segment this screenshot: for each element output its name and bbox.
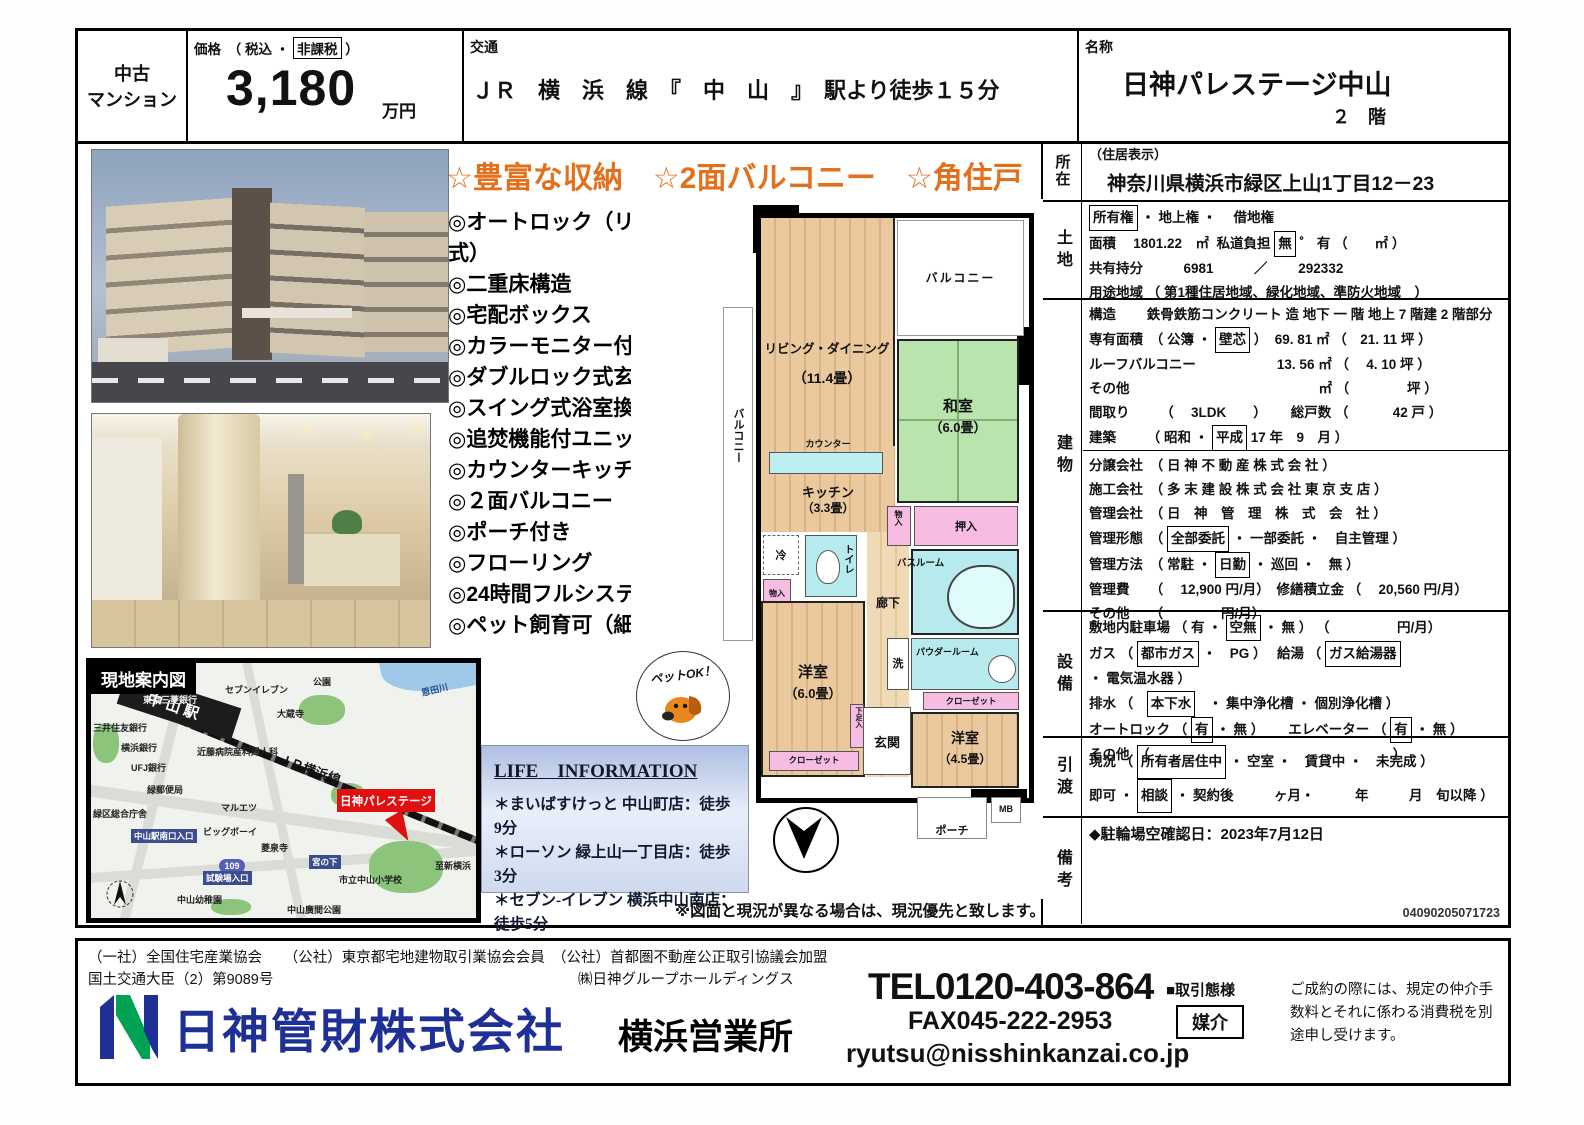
selected-option: 壁芯 (1215, 327, 1250, 353)
text-segment: 間取り （ 3LDK ） 総戸数 （ 42 戸 ） (1089, 405, 1442, 420)
map-property-marker: 日神パレステージ (337, 789, 435, 812)
text-segment: ） 69. 81 ㎡ （ 21. 11 坪 ） (1250, 332, 1432, 347)
access-value: ＪＲ 横 浜 線 『 中 山 』 駅より徒歩１５分 (472, 73, 1000, 105)
selected-option: 空無 (1226, 615, 1261, 641)
text-segment: ・ 無 ） (1412, 722, 1464, 737)
structure-row: 構造 鉄骨鉄筋コンクリート 造 地下 一 階 地上 7 階建 2 階部分 (1089, 303, 1502, 327)
map-label-bank4: UFJ銀行 (131, 761, 166, 774)
map-rail-label: ＪＲ横浜線 (276, 748, 344, 788)
western2-label: 洋室 (913, 728, 1017, 748)
selected-option: 平成 (1212, 425, 1247, 451)
text-segment: 管理会社 （ 日 神 管 理 株 式 会 社 ） (1089, 506, 1387, 521)
road-markings (92, 378, 448, 383)
room-powder: パウダールーム (911, 638, 1019, 690)
text-segment: その他 ㎡ （ 坪 ） (1089, 381, 1438, 396)
life-information-title: LIFE INFORMATION (494, 756, 736, 783)
map-label-market: マルエツ (221, 801, 257, 814)
balcony-left: バルコニー (723, 307, 753, 641)
map-label-crossing1: 中山駅南口入口 (131, 829, 197, 843)
management-form-row: 管理形態 （ 全部委託 ・ 一部委託 ・ 自主管理 ） (1089, 526, 1502, 552)
holding-company: ㈱日神グループホールディングス (578, 968, 794, 989)
name-cell: 名称 日神パレステージ中山 ２ 階 (1077, 31, 1508, 141)
floor-number: ２ 階 (1332, 103, 1386, 129)
section-building: 建物 構造 鉄骨鉄筋コンクリート 造 地下 一 階 地上 7 階建 2 階部分 … (1043, 298, 1508, 612)
association-line1: （一社）全国住宅産業協会 （公社）東京都宅地建物取引業協会会員 （公社）首都圏不… (88, 946, 828, 967)
geta-label: 下足入 (853, 707, 863, 728)
living-size: （11.4畳） (761, 368, 893, 388)
lobby-door (288, 474, 304, 584)
map-label-crossing2: 試験場入口 (203, 871, 252, 885)
location-map: 中山駅 ＪＲ横浜線 日神パレステージ 109 東京三菱銀行 セブンイレブン 公園… (86, 658, 481, 923)
pet-ok-badge: ペットOK！ (636, 651, 730, 741)
lobby-plant (332, 510, 362, 534)
room-washitsu: 和室 （6.0畳） (897, 339, 1019, 503)
compass-icon (773, 807, 839, 873)
text-segment: 管理費 （ 12,900 円/月） 修繕積立金 （ 20,560 円/月） (1089, 582, 1468, 597)
selected-option: ガス給湯器 (1325, 641, 1401, 667)
roof-balcony-row: ルーフバルコニー 13. 56 ㎡ （ 4. 10 坪 ） (1089, 353, 1502, 377)
lobby-wall-left (92, 438, 162, 618)
mb-box: MB (991, 797, 1021, 823)
constructor-row: 施工会社 （ 多 末 建 設 株 式 会 社 東 京 支 店 ） (1089, 478, 1502, 502)
other-area-row: その他 ㎡ （ 坪 ） (1089, 377, 1502, 401)
text-segment: ・ 契約後 ヶ月・ 年 月 旬以降 ） (1172, 788, 1494, 803)
text-segment: 施工会社 （ 多 末 建 設 株 式 会 社 東 京 支 店 ） (1089, 482, 1388, 497)
remarks-code: 04090205071723 (1403, 906, 1500, 920)
company-name: 日神管財株式会社 (173, 993, 565, 1062)
text-segment: ・ 地上権 ・ 借地権 (1138, 210, 1275, 225)
text-segment: 管理形態 （ (1089, 531, 1167, 546)
lobby-photo (91, 413, 431, 648)
section-land-label: 土地 (1043, 202, 1082, 300)
text-segment: 17 年 9 月 ） (1247, 430, 1348, 445)
balcony-top-label: バルコニー (898, 269, 1023, 286)
western2-size: （4.5畳） (913, 750, 1017, 767)
property-type-line1: 中古 (114, 60, 150, 86)
gas-row: ガス （ 都市ガス ・ PG ） 給湯 （ ガス給湯器 ・ 電気温水器 ） (1089, 641, 1502, 691)
floorplan-disclaimer: ※図面と現況が異なる場合は、現況優先と致します。 (675, 899, 1045, 921)
balcony-top: バルコニー (897, 220, 1024, 336)
building-block-left (106, 197, 236, 356)
map-label-bank3: 横浜銀行 (121, 741, 157, 754)
text-segment: ・ 集中浄化槽 ・ 個別浄化槽 ） (1195, 696, 1399, 711)
management-method-row: 管理方法 （ 常駐 ・ 日勤 ・ 巡回 ・ 無 ） (1089, 552, 1502, 578)
laundry-label: 洗 (888, 655, 908, 671)
toilet-bowl (816, 550, 840, 584)
section-land: 土地 所有権 ・ 地上権 ・ 借地権 面積 1801.22 ㎡ 私道負担 無 ゜… (1043, 200, 1508, 300)
building-structure-block: 構造 鉄骨鉄筋コンクリート 造 地下 一 階 地上 7 階建 2 階部分 専有面… (1083, 300, 1508, 451)
fridge-space: 冷 (763, 535, 799, 575)
toilet-label: トイレ (840, 544, 855, 574)
text-segment: ・ 無 ） （ 円/月） (1261, 620, 1442, 635)
western1-label: 洋室 (763, 661, 863, 682)
property-type-cell: 中古 マンション (78, 31, 188, 141)
text-segment: ・ 空室 ・ 賃貸中 ・ 未完成 ） (1226, 754, 1434, 769)
address-type-label: （住居表示） (1089, 144, 1502, 163)
text-segment: 排水 （ (1089, 696, 1147, 711)
selected-option: 所有権 (1089, 205, 1138, 231)
map-label-postoffice: 緑郵便局 (147, 783, 183, 796)
selected-option: 本下水 (1147, 691, 1196, 717)
layout-row: 間取り （ 3LDK ） 総戸数 （ 42 戸 ） (1089, 401, 1502, 425)
selected-option: 非課税 (293, 37, 342, 59)
lobby-desk (304, 532, 400, 586)
map-label-temple1: 大蔵寺 (277, 707, 304, 720)
section-handover-label: 引渡 (1043, 738, 1082, 818)
text-segment: 専有面積 （ 公簿 ・ (1089, 332, 1215, 347)
map-label-restaurant: ビッグボーイ (203, 825, 257, 838)
porch-label: ポーチ (918, 822, 986, 838)
list-item: ＊まいばすけっと 中山町店：徒歩9分 (494, 793, 736, 841)
commission-note: ご成約の際には、規定の仲介手数料とそれに係わる消費税を別途申し受けます。 (1290, 979, 1505, 1048)
room-kitchen: カウンター キッチン （3.3畳） (761, 446, 895, 532)
footer-box: （一社）全国住宅産業協会 （公社）東京都宅地建物取引業協会会員 （公社）首都圏不… (75, 938, 1511, 1086)
parking-row: 敷地内駐車場 （ 有 ・ 空無 ・ 無 ） （ 円/月） (1089, 615, 1502, 641)
section-handover: 引渡 現況 （ 所有者居住中 ・ 空室 ・ 賃貸中 ・ 未完成 ） 即可 ・ 相… (1043, 736, 1508, 818)
room-western-2: 洋室 （4.5畳） (911, 712, 1019, 788)
closet-1: クローゼット (769, 751, 859, 771)
list-item: ＊ローソン 緑上山一丁目店：徒歩3分 (494, 841, 736, 889)
closet-2-label: クローゼット (924, 695, 1018, 707)
text-segment: オートロック （ (1089, 722, 1191, 737)
map-label-hospital: 近藤病院産科婦人科 (197, 745, 278, 758)
land-share-row: 共有持分 6981 ／ 292332 (1089, 257, 1502, 281)
text-segment: 管理方法 （ 常駐 ・ (1089, 557, 1215, 572)
branch-office: 横浜営業所 (618, 1009, 793, 1060)
map-label-temple2: 菱泉寺 (261, 841, 288, 854)
map-label-park: 公園 (313, 675, 331, 688)
email-address: ryutsu@nisshinkanzai.co.jp (846, 1038, 1189, 1069)
mb-label: MB (992, 804, 1020, 814)
seller-row: 分譲会社 （ 日 神 不 動 産 株 式 会 社 ） (1089, 454, 1502, 478)
washitsu-size: （6.0畳） (899, 417, 1017, 436)
land-rights-row: 所有権 ・ 地上権 ・ 借地権 (1089, 205, 1502, 231)
deal-type-value: 媒介 (1176, 1005, 1244, 1039)
land-area-row: 面積 1801.22 ㎡ 私道負担 無 ゜ 有 （ ㎡ ） (1089, 231, 1502, 257)
text-segment: 価格 （ 税込 ・ (194, 42, 293, 57)
map-label-kindergarten: 中山幼稚園 (177, 893, 222, 906)
storage-2: 物入 (887, 506, 911, 546)
building-block-right (364, 212, 448, 352)
map-label-park2: 中山廣間公園 (287, 903, 341, 916)
living-label: リビング・ダイニング (761, 338, 893, 357)
built-year-row: 建築 （ 昭和 ・ 平成 17 年 9 月 ） (1089, 425, 1502, 451)
map-label-crossing3: 宮の下 (309, 855, 341, 869)
management-company-row: 管理会社 （ 日 神 管 理 株 式 会 社 ） (1089, 502, 1502, 526)
map-label-bank2: 三井住友銀行 (93, 721, 147, 734)
building-photo (91, 149, 449, 403)
text-segment: 共有持分 6981 ／ 292332 (1089, 261, 1343, 276)
kitchen-counter (769, 452, 883, 474)
building-tower (232, 188, 272, 360)
selected-option: 都市ガス (1137, 641, 1199, 667)
map-label-conv: セブンイレブン (225, 683, 288, 696)
selected-option: 無 (1274, 231, 1296, 257)
text-segment: ・ 一部委託 ・ 自主管理 ） (1229, 531, 1406, 546)
text-segment: 面積 1801.22 ㎡ 私道負担 (1089, 236, 1274, 251)
oshiire: 押入 (914, 506, 1018, 546)
selected-option: 全部委託 (1167, 526, 1229, 552)
property-type-line2: マンション (87, 86, 177, 112)
bathtub (947, 565, 1015, 629)
remarks-text: ◆駐輪場空確認日：2023年7月12日 (1089, 823, 1502, 844)
closet-2: クローゼット (923, 692, 1019, 710)
highlights-headline: ☆豊富な収納 ☆2面バルコニー ☆角住戸 (446, 153, 1023, 197)
genkan-label: 玄関 (864, 732, 910, 751)
counter-label: カウンター (761, 437, 895, 450)
license-number: 国土交通大臣（2）第9089号 (88, 968, 273, 989)
closet-1-label: クローゼット (770, 754, 858, 766)
exclusive-area-row: 専有面積 （ 公簿 ・ 壁芯 ） 69. 81 ㎡ （ 21. 11 坪 ） (1089, 327, 1502, 353)
section-remarks: 備考 ◆駐輪場空確認日：2023年7月12日 04090205071723 (1043, 816, 1508, 924)
access-cell: 交通 ＪＲ 横 浜 線 『 中 山 』 駅より徒歩１５分 (462, 31, 1079, 141)
building-name: 日神パレステージ中山 (1122, 63, 1391, 102)
text-segment: ・ 巡回 ・ 無 ） (1250, 557, 1360, 572)
life-information-box: LIFE INFORMATION ＊まいばすけっと 中山町店：徒歩9分＊ローソン… (481, 745, 749, 893)
building-block-mid (270, 203, 365, 358)
management-fee-row: 管理費 （ 12,900 円/月） 修繕積立金 （ 20,560 円/月） (1089, 578, 1502, 602)
kitchen-size: （3.3畳） (761, 499, 895, 516)
main-frame: 中古 マンション 価格 （ 税込 ・ 非課税 ） 3,180 万円 交通 ＪＲ … (75, 28, 1511, 928)
lobby-floor (92, 600, 430, 647)
text-segment: 構造 鉄骨鉄筋コンクリート 造 地下 一 階 地上 7 階建 2 階部分 (1089, 307, 1493, 322)
section-location-label: 所在 (1043, 141, 1082, 200)
geta-box: 下足入 (850, 704, 864, 748)
access-label: 交通 (470, 37, 498, 57)
hallway-label: 廊下 (867, 594, 909, 611)
porch: ポーチ (917, 797, 987, 839)
room-living-dining: リビング・ダイニング （11.4畳） (761, 218, 895, 446)
map-park-1 (299, 695, 345, 725)
text-segment: 建築 （ 昭和 ・ (1089, 430, 1212, 445)
fridge-label: 冷 (764, 547, 798, 563)
price-unit: 万円 (382, 97, 416, 122)
header-row: 中古 マンション 価格 （ 税込 ・ 非課税 ） 3,180 万円 交通 ＪＲ … (78, 31, 1508, 144)
handover-timing-row: 即可 ・ 相談 ・ 契約後 ヶ月・ 年 月 旬以降 ） (1089, 779, 1502, 813)
text-segment: 敷地内駐車場 （ 有 ・ (1089, 620, 1226, 635)
text-segment: ガス （ (1089, 646, 1137, 661)
laundry-space: 洗 (887, 638, 909, 690)
map-label-office: 緑区総合庁舎 (93, 807, 147, 820)
drainage-row: 排水 （ 本下水 ・ 集中浄化槽 ・ 個別浄化槽 ） (1089, 691, 1502, 717)
price-value: 3,180 (226, 59, 356, 117)
selected-option: 所有者居住中 (1137, 745, 1226, 779)
room-western-1: 洋室 （6.0畳） クローゼット (761, 601, 865, 777)
storage-2-label: 物入 (893, 510, 904, 526)
price-cell: 価格 （ 税込 ・ 非課税 ） 3,180 万円 (186, 31, 464, 141)
map-label-school: 市立中山小学校 (339, 873, 402, 886)
text-segment: 現況 （ (1089, 754, 1137, 769)
building-company-block: 分譲会社 （ 日 神 不 動 産 株 式 会 社 ） 施工会社 （ 多 末 建 … (1083, 451, 1508, 629)
map-title-tag: 現地案内図 (91, 663, 196, 694)
section-remarks-label: 備考 (1043, 818, 1082, 924)
name-label: 名称 (1085, 37, 1113, 57)
storage-1-label: 物入 (764, 588, 790, 599)
property-address: 神奈川県横浜市緑区上山1丁目12－23 (1107, 167, 1502, 196)
price-label: 価格 （ 税込 ・ 非課税 ） (194, 37, 359, 59)
map-compass-icon (105, 877, 135, 911)
balcony-left-label: バルコニー (730, 408, 746, 463)
current-status-row: 現況 （ 所有者居住中 ・ 空室 ・ 賃貸中 ・ 未完成 ） (1089, 745, 1502, 779)
section-location: 所在 （住居表示） 神奈川県横浜市緑区上山1丁目12－23 (1043, 141, 1508, 200)
section-equipment-label: 設備 (1043, 612, 1082, 738)
map-label-bank1: 東京三菱銀行 (143, 693, 197, 706)
section-equipment: 設備 敷地内駐車場 （ 有 ・ 空無 ・ 無 ） （ 円/月） ガス （ 都市ガ… (1043, 610, 1508, 738)
flyer-sheet: 中古 マンション 価格 （ 税込 ・ 非課税 ） 3,180 万円 交通 ＪＲ … (0, 0, 1584, 1125)
life-information-list: ＊まいばすけっと 中山町店：徒歩9分＊ローソン 緑上山一丁目店：徒歩3分＊セブン… (494, 793, 736, 961)
text-segment: ） (342, 42, 359, 57)
genkan: 玄関 (863, 707, 911, 775)
washitsu-label: 和室 (899, 395, 1017, 416)
oshiire-label: 押入 (915, 518, 1017, 534)
text-segment: 即可 ・ (1089, 788, 1137, 803)
entrance-canopy (242, 308, 352, 318)
deal-type-label: ■取引態様 (1166, 979, 1235, 1000)
map-label-direction: 至新横浜 (435, 859, 471, 872)
selected-option: 日勤 (1215, 552, 1250, 578)
text-segment: ・ PG ） 給湯 （ (1199, 646, 1325, 661)
phone-number: TEL0120-403-864 (868, 966, 1153, 1008)
pet-ok-label: ペットOK！ (636, 660, 729, 690)
text-segment: ルーフバルコニー 13. 56 ㎡ （ 4. 10 坪 ） (1089, 357, 1431, 372)
room-toilet: トイレ (805, 535, 857, 597)
section-building-label: 建物 (1043, 300, 1082, 612)
selected-option: 相談 (1137, 779, 1172, 813)
text-segment: ・ 無 ） エレベーター （ (1213, 722, 1391, 737)
powder-sink (988, 655, 1016, 683)
fax-number: FAX045-222-2953 (908, 1007, 1112, 1036)
text-segment: 分譲会社 （ 日 神 不 動 産 株 式 会 社 ） (1089, 458, 1336, 473)
western1-size: （6.0畳） (763, 683, 863, 702)
map-property-label: 日神パレステージ (340, 793, 432, 809)
room-bathroom: バスルーム (911, 549, 1019, 635)
dog-icon (659, 688, 705, 726)
company-logo-icon (98, 993, 162, 1061)
text-segment: ゜ 有 （ ㎡ ） (1296, 236, 1406, 251)
